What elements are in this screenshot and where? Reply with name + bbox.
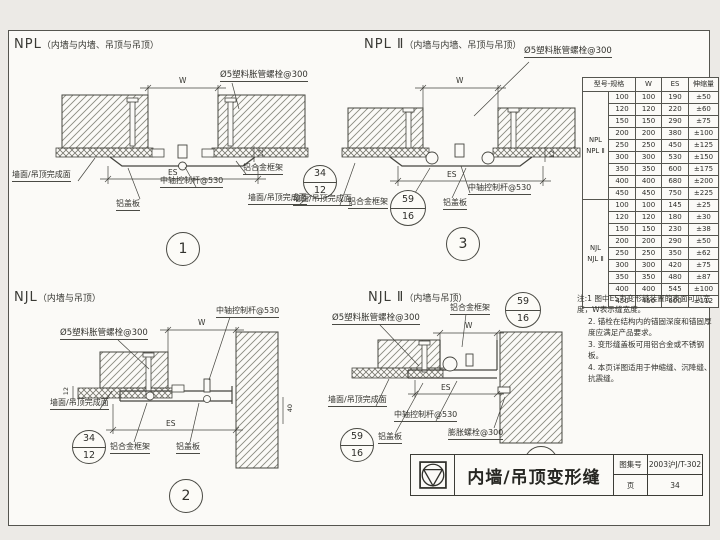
detail-2-scope: （内墙与吊顶） xyxy=(38,294,101,304)
table-cell: 300 xyxy=(636,260,662,272)
table-cell: ±87 xyxy=(689,272,719,284)
detail-number-bubble: 3 xyxy=(446,227,480,261)
table-group-npl: NPL NPL Ⅱ 100100190±50 120120220±60 1501… xyxy=(583,92,719,200)
note-line: 2. 锚栓在结构内的锚固深度和锚固厚度应满足产品要求。 xyxy=(577,316,717,338)
label-dim-es: ES xyxy=(441,383,451,392)
table-cell: 200 xyxy=(609,236,636,248)
table-cell: ±50 xyxy=(689,92,719,104)
ref-sheet-number: 34 xyxy=(73,431,105,448)
table-cell: 600 xyxy=(662,164,689,176)
table-cell: 190 xyxy=(662,92,689,104)
table-cell: 400 xyxy=(609,176,636,188)
table-header: ES xyxy=(662,78,689,92)
table-cell: 145 xyxy=(662,200,689,212)
label-finish-surface: 墙面/吊顶完成面 xyxy=(328,395,387,407)
page-label: 页 xyxy=(614,475,648,495)
label-expansion-bolt: 膨胀螺栓@300 xyxy=(448,428,503,440)
scanned-atlas-page: { "panels": { "p1": { "code": "NPL", "sc… xyxy=(0,0,720,540)
table-cell: 480 xyxy=(662,272,689,284)
table-cell: 420 xyxy=(662,260,689,272)
label-control-rod: 中轴控制杆@530 xyxy=(394,410,457,422)
table-cell: 250 xyxy=(636,140,662,152)
label-plastic-anchor-bolt: Ø5塑料胀管螺栓@300 xyxy=(220,70,308,82)
atlas-logo-icon xyxy=(419,461,447,489)
table-cell: 450 xyxy=(609,188,636,200)
label-finish-surface: 墙面/吊顶完成面 xyxy=(293,194,352,206)
table-cell: 180 xyxy=(662,212,689,224)
table-header: W xyxy=(636,78,662,92)
label-dim-side: 12 xyxy=(62,387,70,395)
table-cell: ±25 xyxy=(689,200,719,212)
detail-3-scope: （内墙与内墙、吊顶与吊顶） xyxy=(404,41,521,51)
table-cell: ±75 xyxy=(689,260,719,272)
label-cover-plate: 铝盖板 xyxy=(116,199,140,211)
detail-4-code: NJL Ⅱ xyxy=(368,290,404,305)
label-dim-es: ES xyxy=(166,419,176,428)
atlas-no-label: 图集号 xyxy=(614,455,648,475)
table-cell: ±60 xyxy=(689,104,719,116)
ref-sheet-number: 59 xyxy=(391,191,425,209)
title-block: 内墙/吊顶变形缝 图集号 2003沪J/T-302 页 34 xyxy=(410,454,703,496)
detail-2-code: NJL xyxy=(14,290,38,305)
table-cell: 120 xyxy=(609,212,636,224)
table-group-label: NPL NPL Ⅱ xyxy=(583,92,609,200)
label-cover-plate: 铝盖板 xyxy=(443,198,467,210)
table-cell: ±200 xyxy=(689,176,719,188)
label-alu-frame: 铝合金框架 xyxy=(243,163,283,175)
table-row: NJL NJL Ⅱ 100100145±25 xyxy=(583,200,719,212)
detail-1-code: NPL xyxy=(14,37,42,52)
table-cell: 100 xyxy=(636,200,662,212)
table-group-njl: NJL NJL Ⅱ 100100145±25 120120180±30 1501… xyxy=(583,200,719,308)
table-cell: ±75 xyxy=(689,116,719,128)
table-cell: 530 xyxy=(662,152,689,164)
label-finish-surface: 墙面/吊顶完成面 xyxy=(50,398,109,410)
ref-sheet-number: 59 xyxy=(506,293,540,311)
label-dim-w: W xyxy=(465,321,472,330)
table-cell: ±100 xyxy=(689,128,719,140)
table-cell: 290 xyxy=(662,116,689,128)
table-group-label: NJL NJL Ⅱ xyxy=(583,200,609,308)
detail-number-bubble: 2 xyxy=(169,479,203,513)
table-cell: 290 xyxy=(662,236,689,248)
table-cell: 450 xyxy=(636,188,662,200)
label-dim-w: W xyxy=(179,76,186,85)
table-cell: ±150 xyxy=(689,152,719,164)
table-cell: 350 xyxy=(662,248,689,260)
sheet-title: 内墙/吊顶变形缝 xyxy=(455,455,614,495)
ref-sheet-number: 34 xyxy=(304,166,336,183)
table-cell: ±50 xyxy=(689,236,719,248)
table-cell: 200 xyxy=(636,128,662,140)
table-cell: 220 xyxy=(662,104,689,116)
detail-number-bubble: 1 xyxy=(166,232,200,266)
label-dim-side: 40 xyxy=(286,404,294,412)
table-cell: 150 xyxy=(609,116,636,128)
label-finish-surface: 墙面/吊顶完成面 xyxy=(12,170,71,182)
table-cell: 250 xyxy=(609,140,636,152)
table-cell: 400 xyxy=(636,176,662,188)
label-dim-w: W xyxy=(198,318,205,327)
table-cell: 380 xyxy=(662,128,689,140)
table-cell: 200 xyxy=(636,236,662,248)
table-cell: ±175 xyxy=(689,164,719,176)
ref-bubble-59-16: 59 16 xyxy=(340,428,374,462)
label-plastic-anchor-bolt: Ø5塑料胀管螺栓@300 xyxy=(332,313,420,325)
detail-2-title: NJL（内墙与吊顶） xyxy=(14,286,101,305)
label-plastic-anchor-bolt: Ø5塑料胀管螺栓@300 xyxy=(60,328,148,340)
table-cell: 300 xyxy=(609,260,636,272)
table-header-row: 型号-规格 W ES 伸缩量 xyxy=(583,78,719,92)
ref-sheet-number: 59 xyxy=(341,429,373,446)
page-number: 34 xyxy=(648,475,702,495)
table-cell: ±38 xyxy=(689,224,719,236)
ref-detail-number: 12 xyxy=(73,448,105,464)
table-cell: 100 xyxy=(609,200,636,212)
table-header: 型号-规格 xyxy=(583,78,636,92)
table-cell: 230 xyxy=(662,224,689,236)
detail-3-code: NPL Ⅱ xyxy=(364,37,404,52)
label-dim-w: W xyxy=(456,76,463,85)
detail-1-scope: （内墙与内墙、吊顶与吊顶） xyxy=(42,41,159,51)
table-cell: 250 xyxy=(636,248,662,260)
label-alu-frame: 铝合金框架 xyxy=(450,303,490,315)
note-line: 4. 本页详图适用于伸缩缝、沉降缝、抗震缝。 xyxy=(577,362,717,384)
ref-bubble-59-16: 59 16 xyxy=(390,190,426,226)
label-control-rod: 中轴控制杆@530 xyxy=(160,176,223,188)
table-header: 伸缩量 xyxy=(689,78,719,92)
table-cell: 350 xyxy=(636,272,662,284)
table-cell: 150 xyxy=(636,116,662,128)
table-cell: ±125 xyxy=(689,140,719,152)
table-cell: 150 xyxy=(609,224,636,236)
table-cell: 120 xyxy=(609,104,636,116)
table-cell: ±62 xyxy=(689,248,719,260)
label-control-rod: 中轴控制杆@530 xyxy=(468,183,531,195)
table-cell: 300 xyxy=(609,152,636,164)
table-cell: 350 xyxy=(609,164,636,176)
table-cell: 680 xyxy=(662,176,689,188)
ref-detail-number: 16 xyxy=(506,311,540,328)
atlas-no-value: 2003沪J/T-302 xyxy=(648,455,702,475)
label-dim-side: 12 xyxy=(257,149,265,157)
table-cell: 100 xyxy=(609,92,636,104)
title-block-logo-cell xyxy=(411,455,455,495)
table-row: NPL NPL Ⅱ 100100190±50 xyxy=(583,92,719,104)
label-cover-plate: 铝盖板 xyxy=(176,442,200,454)
table-cell: 450 xyxy=(662,140,689,152)
table-cell: 100 xyxy=(636,92,662,104)
title-block-grid: 图集号 2003沪J/T-302 页 34 xyxy=(614,455,702,495)
label-dim-side: 12 xyxy=(548,150,556,158)
notes: 注:1 图中ES为变形缝装置的表面可见宽度，W表示缝宽度。 2. 锚栓在结构内的… xyxy=(577,293,717,385)
label-alu-frame: 铝合金框架 xyxy=(348,197,388,209)
spec-table: 型号-规格 W ES 伸缩量 NPL NPL Ⅱ 100100190±50 12… xyxy=(582,77,719,308)
table-cell: 120 xyxy=(636,104,662,116)
table-cell: 200 xyxy=(609,128,636,140)
label-control-rod: 中轴控制杆@530 xyxy=(216,306,279,318)
ref-detail-number: 16 xyxy=(391,209,425,226)
table-cell: 350 xyxy=(609,272,636,284)
table-cell: 250 xyxy=(609,248,636,260)
ref-bubble-59-16: 59 16 xyxy=(505,292,541,328)
table-cell: 150 xyxy=(636,224,662,236)
label-dim-es: ES xyxy=(447,170,457,179)
table-cell: 350 xyxy=(636,164,662,176)
table-cell: 120 xyxy=(636,212,662,224)
label-plastic-anchor-bolt: Ø5塑料胀管螺栓@300 xyxy=(524,46,612,58)
ref-bubble-34-12: 34 12 xyxy=(72,430,106,464)
table-cell: 750 xyxy=(662,188,689,200)
label-cover-plate: 铝盖板 xyxy=(378,432,402,444)
note-line: 3. 变形缝盖板可用铝合金或不锈钢板。 xyxy=(577,339,717,361)
detail-1-title: NPL（内墙与内墙、吊顶与吊顶） xyxy=(14,33,159,52)
detail-3-title: NPL Ⅱ（内墙与内墙、吊顶与吊顶） xyxy=(364,33,521,52)
table-cell: ±225 xyxy=(689,188,719,200)
table-cell: 300 xyxy=(636,152,662,164)
ref-detail-number: 16 xyxy=(341,446,373,462)
note-line: 注:1 图中ES为变形缝装置的表面可见宽度，W表示缝宽度。 xyxy=(577,293,717,315)
label-alu-frame: 铝合金框架 xyxy=(110,442,150,454)
table-cell: ±30 xyxy=(689,212,719,224)
